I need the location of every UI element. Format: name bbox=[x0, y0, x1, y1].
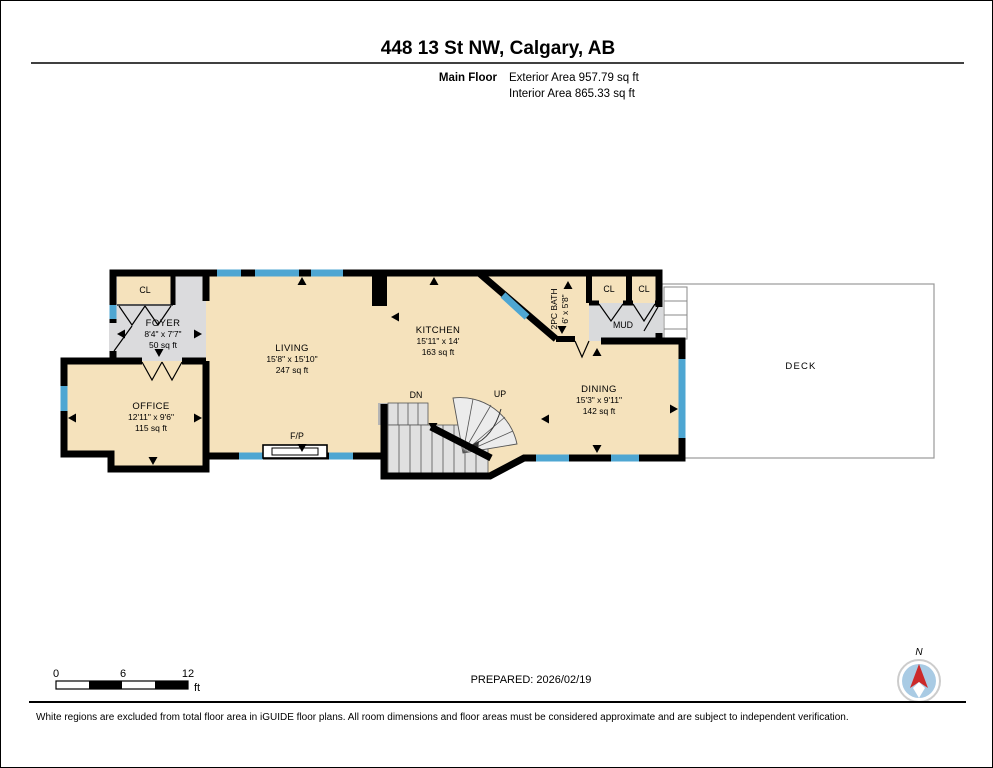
stairs-up-label: UP bbox=[494, 389, 506, 399]
floor-label: Main Floor bbox=[439, 72, 498, 84]
footer-note: White regions are excluded from total fl… bbox=[29, 702, 966, 723]
room-kitchen: KITCHEN 15'11" x 14' 163 sq ft bbox=[416, 325, 461, 357]
closet-left-label: CL bbox=[603, 284, 614, 294]
room-dining: DINING 15'3" x 9'11" 142 sq ft bbox=[576, 384, 622, 416]
interior-area-label: Interior Area 865.33 sq ft bbox=[509, 88, 636, 100]
kitchen-area: 163 sq ft bbox=[422, 347, 455, 357]
deck-label: DECK bbox=[785, 361, 816, 372]
foyer-name: FOYER bbox=[146, 318, 181, 329]
scale-12: 12 bbox=[182, 668, 194, 680]
fireplace-label: F/P bbox=[290, 431, 304, 441]
stairs-down-label: DN bbox=[410, 390, 423, 400]
living-name: LIVING bbox=[275, 343, 309, 354]
bath-name: 2PC BATH bbox=[549, 289, 559, 330]
compass-north-label: N bbox=[915, 647, 923, 658]
office-name: OFFICE bbox=[132, 401, 169, 412]
dining-name: DINING bbox=[581, 384, 617, 395]
foyer-area: 50 sq ft bbox=[149, 340, 178, 350]
prepared-date: PREPARED: 2026/02/19 bbox=[471, 674, 592, 686]
closet-right-label: CL bbox=[638, 284, 649, 294]
room-foyer: FOYER 8'4" x 7'7" 50 sq ft bbox=[144, 318, 181, 350]
floorplan-canvas: 448 13 St NW, Calgary, AB Main Floor Ext… bbox=[1, 1, 993, 768]
scale-6: 6 bbox=[120, 668, 126, 680]
room-bath: 2PC BATH 6' x 5'8" bbox=[549, 289, 570, 330]
page-title: 448 13 St NW, Calgary, AB bbox=[381, 38, 615, 59]
deck-area: DECK bbox=[662, 284, 934, 458]
footer-disclaimer: White regions are excluded from total fl… bbox=[36, 712, 849, 723]
living-dims: 15'8" x 15'10" bbox=[266, 354, 317, 364]
foyer-dims: 8'4" x 7'7" bbox=[144, 329, 181, 339]
scale-bar: 0 6 12 ft bbox=[53, 668, 200, 694]
living-area: 247 sq ft bbox=[276, 365, 309, 375]
dining-area: 142 sq ft bbox=[583, 406, 616, 416]
kitchen-name: KITCHEN bbox=[416, 325, 461, 336]
dining-dims: 15'3" x 9'11" bbox=[576, 395, 622, 405]
office-area: 115 sq ft bbox=[135, 423, 168, 433]
bath-dims: 6' x 5'8" bbox=[560, 294, 570, 323]
scale-unit: ft bbox=[194, 682, 200, 694]
office-dims: 12'11" x 9'6" bbox=[128, 412, 174, 422]
floorplan-page: 448 13 St NW, Calgary, AB Main Floor Ext… bbox=[0, 0, 993, 768]
foyer-closet-label: CL bbox=[139, 285, 150, 295]
compass: N bbox=[898, 647, 940, 702]
deck-steps bbox=[664, 287, 687, 339]
header: 448 13 St NW, Calgary, AB Main Floor Ext… bbox=[31, 38, 964, 100]
mud-label: MUD bbox=[613, 320, 633, 330]
scale-0: 0 bbox=[53, 668, 59, 680]
wall-stub bbox=[372, 273, 387, 306]
kitchen-dims: 15'11" x 14' bbox=[417, 336, 460, 346]
exterior-area-label: Exterior Area 957.79 sq ft bbox=[509, 72, 640, 84]
